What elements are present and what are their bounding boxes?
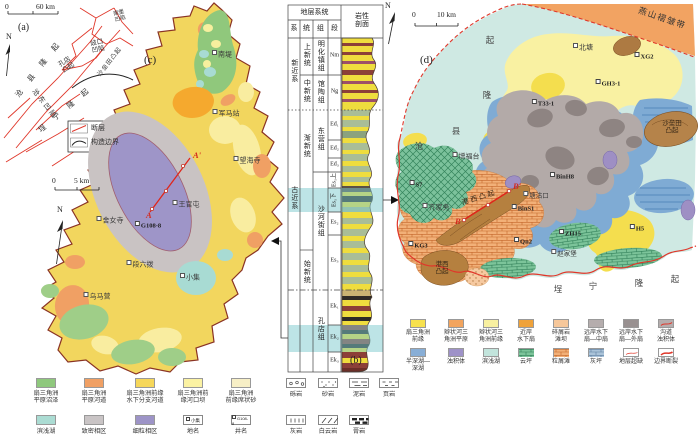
swatch-d-fan-front — [410, 319, 426, 328]
cangdong-facies-map — [41, 3, 284, 374]
swatch-d-boundary-fault — [658, 348, 674, 357]
swatch-d-shore-lake — [483, 348, 499, 357]
series-eocene: 始新统 — [303, 260, 311, 284]
well-binh8: BinH8 — [550, 172, 574, 181]
well-h5: H5 — [630, 224, 644, 233]
label-cangxian-char2: 隆 — [483, 91, 492, 101]
scalebar-a — [8, 11, 58, 14]
swatch-d-overlap-line — [623, 348, 639, 357]
member-ed2: Ed₂ — [330, 146, 339, 153]
swatch-d-nearshore-fan — [518, 319, 534, 328]
place-zengfutai: 增福台 — [453, 152, 480, 161]
label-chengning-char0: 埕 — [554, 285, 563, 295]
sym-dolomite — [318, 415, 338, 425]
swatch-d-farfan-mid — [588, 319, 604, 328]
legend-d-fan-front: 扇三角洲 前缘 — [406, 330, 430, 344]
label-cangxian-char1: 县 — [452, 127, 461, 137]
place-qijiawu: 齐家务 — [423, 203, 450, 212]
scale-a-label: 60 km — [36, 3, 55, 11]
legend-fan-plain-channel: 扇三角洲 平原河道 — [82, 390, 107, 404]
legend-well-name: 井名 — [235, 428, 247, 435]
member-es1-upper: Es₁上 — [331, 173, 338, 187]
legend-place-name: 地名 — [187, 428, 199, 435]
well-kg3: KG3 — [408, 241, 427, 250]
member-ed3: Ed₃ — [330, 162, 339, 169]
scale-d-label: 10 km — [437, 11, 456, 19]
sym-shale — [379, 378, 399, 388]
sample-well: G108-8 — [232, 415, 250, 426]
label-chengning-char1: 宁 — [589, 282, 598, 292]
panel-c-tag: (c) — [144, 54, 156, 66]
well-g108-8: G108-8 — [135, 221, 161, 230]
legend-conglomerate: 砾岩 — [290, 391, 302, 398]
scale-c-zero: 0 — [52, 177, 56, 185]
section-b-start: B — [455, 217, 461, 227]
fm-guantao: 馆陶组 — [317, 80, 325, 104]
qikou-facies-map — [389, 4, 700, 286]
swatch-place-name: 小集 — [183, 415, 203, 425]
legend-d-turbidite: 浊积体 — [447, 359, 465, 366]
system-neogene: 新近系 — [290, 59, 298, 83]
well-gh3-1: GH3-1 — [596, 79, 621, 88]
legend-sandstone: 砂岩 — [322, 391, 334, 398]
panel-b-tag: (b) — [350, 355, 362, 366]
legend-d-braided-plain: 辫状河三 角洲平原 — [444, 330, 468, 344]
legend-d-boundary-fault: 边界断裂 — [654, 359, 678, 366]
series-oligocene: 渐新统 — [303, 134, 311, 158]
legend-dolomite: 白云岩 — [319, 428, 338, 435]
legend-d-shore-lake: 滨浅湖 — [482, 359, 500, 366]
member-ek3: Ek₃ — [330, 358, 339, 365]
place-xiaoji: 小集 — [180, 273, 200, 282]
series-miocene: 中新统 — [303, 79, 311, 103]
legend-d-channel-turbidite: 沟道 浊积体 — [657, 330, 675, 344]
column-connectors — [271, 196, 399, 338]
scale-a-zero: 0 — [5, 3, 9, 11]
scalebar-d — [415, 23, 458, 26]
label-chengning-char2: 隆 — [635, 279, 644, 289]
well-zh15: ZH15 — [559, 229, 581, 238]
series-pliocene: 上新统 — [303, 43, 311, 67]
column-header-strata: 地层系统 — [301, 9, 329, 17]
swatch-tight-zone — [84, 415, 104, 425]
swatch-d-clastic-bar — [553, 319, 569, 328]
member-ed1: Ed₁ — [330, 122, 339, 129]
legend-boundary-label: 构造边界 — [91, 139, 119, 147]
place-wangguantun: 王官屯 — [173, 200, 200, 209]
swatch-d-braided-front — [483, 319, 499, 328]
legend-d-nearshore-fan: 近岸 水下扇 — [517, 330, 535, 344]
legend-d-farfan-mid: 远岸水下 扇—中扇 — [584, 330, 608, 344]
section-b-end: B' — [513, 182, 521, 192]
sym-conglomerate — [286, 378, 306, 388]
column-col-series: 统 — [303, 25, 310, 33]
legend-fine-grain-zone: 细粒相区 — [133, 428, 158, 435]
label-gangxi-uplift-lower: 港西 凸起 — [436, 262, 449, 276]
well-xg2: XG2 — [635, 52, 654, 61]
panel-a-tag: (a) — [18, 22, 29, 33]
legend-fan-plain-marsh: 扇三角洲 平原沼泽 — [34, 390, 59, 404]
column-col-system: 系 — [291, 25, 298, 33]
north-label-a: N — [6, 33, 12, 42]
swatch-well-name: G108-8 — [231, 415, 251, 425]
column-header-lithology: 岩性 剖面 — [355, 13, 369, 29]
legend-d-clastic-bar: 碎屑岩 滩坝 — [552, 330, 570, 344]
place-wanghaisi: 望海寺 — [234, 156, 261, 165]
legend-d-grain-bank: 粒屑滩 — [552, 359, 570, 366]
label-cangxian-char0: 沧 — [415, 142, 424, 152]
scale-c-label: 5 km — [74, 177, 89, 185]
legend-d-dolomite-flat: 云坪 — [520, 359, 532, 366]
place-nandi: 南堤 — [212, 50, 232, 59]
swatch-d-braided-plain — [448, 319, 464, 328]
fm-dongying: 东营组 — [317, 127, 325, 151]
column-col-formation: 组 — [317, 25, 324, 33]
swatch-fan-plain-channel — [84, 378, 104, 388]
legend-d-deep-lake: 半深湖— 深湖 — [406, 359, 430, 373]
swatch-d-dolomite-flat — [518, 348, 534, 357]
well-bins1: BinS1 — [512, 204, 535, 213]
swatch-d-channel-turbidite — [658, 319, 674, 328]
label-cangxian-char3: 起 — [486, 36, 495, 46]
sym-gypsum — [349, 415, 369, 425]
swatch-d-turbidite — [448, 348, 464, 357]
member-ek2: Ek₂ — [330, 335, 339, 342]
member-es2: Es₂ — [330, 220, 338, 227]
legend-tight-zone: 致密相区 — [82, 428, 107, 435]
label-shaleitian-uplift-d: 沙垒田 凸起 — [662, 121, 682, 135]
fm-kongdian: 孔店组 — [317, 317, 325, 341]
legend-gypsum: 膏岩 — [353, 428, 365, 435]
swatch-fan-front-sheet — [231, 378, 251, 388]
member-nm: Nm — [330, 53, 339, 60]
legend-mudstone: 泥岩 — [353, 391, 365, 398]
legend-shale: 页岩 — [383, 391, 395, 398]
swatch-fan-front-mouthbar — [183, 378, 203, 388]
place-duanliubo: 段六拨 — [127, 260, 154, 269]
column-col-member: 段 — [331, 25, 338, 33]
label-chengning-char3: 起 — [671, 275, 680, 285]
section-a-end: A' — [193, 151, 201, 161]
legend-fault-label: 断层 — [91, 125, 105, 133]
sym-sandstone — [318, 378, 338, 388]
legend-d-overlap-line: 地层超缺 — [619, 359, 643, 366]
swatch-d-grain-bank — [553, 348, 569, 357]
legend-fan-front-channel: 扇三角洲前缘 水下分支河道 — [126, 390, 163, 404]
north-label-d: N — [385, 2, 391, 11]
swatch-d-lime-flat — [588, 348, 604, 357]
swatch-d-farfan-outer — [623, 319, 639, 328]
scale-d-zero: 0 — [412, 11, 416, 19]
member-es3: Es₃ — [330, 258, 338, 265]
well-qn2: Qn2 — [514, 237, 532, 246]
system-paleogene: 古近系 — [290, 186, 298, 210]
place-wumaying: 乌马营 — [84, 292, 111, 301]
swatch-fan-plain-marsh — [36, 378, 56, 388]
legend-limestone: 灰岩 — [290, 428, 302, 435]
sample-place: 小集 — [186, 417, 200, 424]
well-s7: S7 — [410, 180, 423, 189]
panel-d-tag: (d) — [420, 54, 433, 66]
geological-figure: 0 60 km (a) N 南堡凹陷 歧口凹陷 沙垒田凸起 孔店凸起 沧东凹陷 … — [0, 0, 700, 438]
member-ng: Ng — [331, 89, 338, 96]
sym-limestone — [286, 415, 306, 425]
fm-shahejie: 沙河街组 — [317, 205, 325, 237]
member-ek1: Ek₁ — [330, 304, 339, 311]
place-beitang: 北塘 — [573, 43, 593, 52]
place-shenusi: 舍女寺 — [97, 216, 124, 225]
swatch-fan-front-channel — [135, 378, 155, 388]
well-t33-1: T33-1 — [532, 99, 554, 108]
north-label-c: N — [57, 206, 63, 215]
section-a-start: A — [146, 211, 152, 221]
swatch-shore-lake — [36, 415, 56, 425]
place-junmazhan: 军马站 — [213, 109, 240, 118]
legend-shore-lake: 滨浅湖 — [37, 428, 56, 435]
place-tangguokou: 塘沽口 — [523, 191, 549, 200]
legend-fan-front-mouthbar: 扇三角洲前 缘河口坝 — [178, 390, 209, 404]
swatch-fine-grain-zone — [135, 415, 155, 425]
legend-d-braided-front: 辫状河三 角洲前缘 — [479, 330, 503, 344]
legend-fan-front-sheet: 扇三角洲 前缘席状砂 — [226, 390, 257, 404]
place-zhaojiabu: 赵家堡 — [551, 249, 577, 258]
legend-d-farfan-outer: 远岸水下 扇—外扇 — [619, 330, 643, 344]
swatch-d-deep-lake — [410, 348, 426, 357]
legend-d-lime-flat: 灰坪 — [590, 359, 602, 366]
sym-mudstone — [349, 378, 369, 388]
fm-minghuazhen: 明化镇组 — [317, 40, 325, 72]
member-es1-lower: Es₁下 — [331, 193, 338, 207]
